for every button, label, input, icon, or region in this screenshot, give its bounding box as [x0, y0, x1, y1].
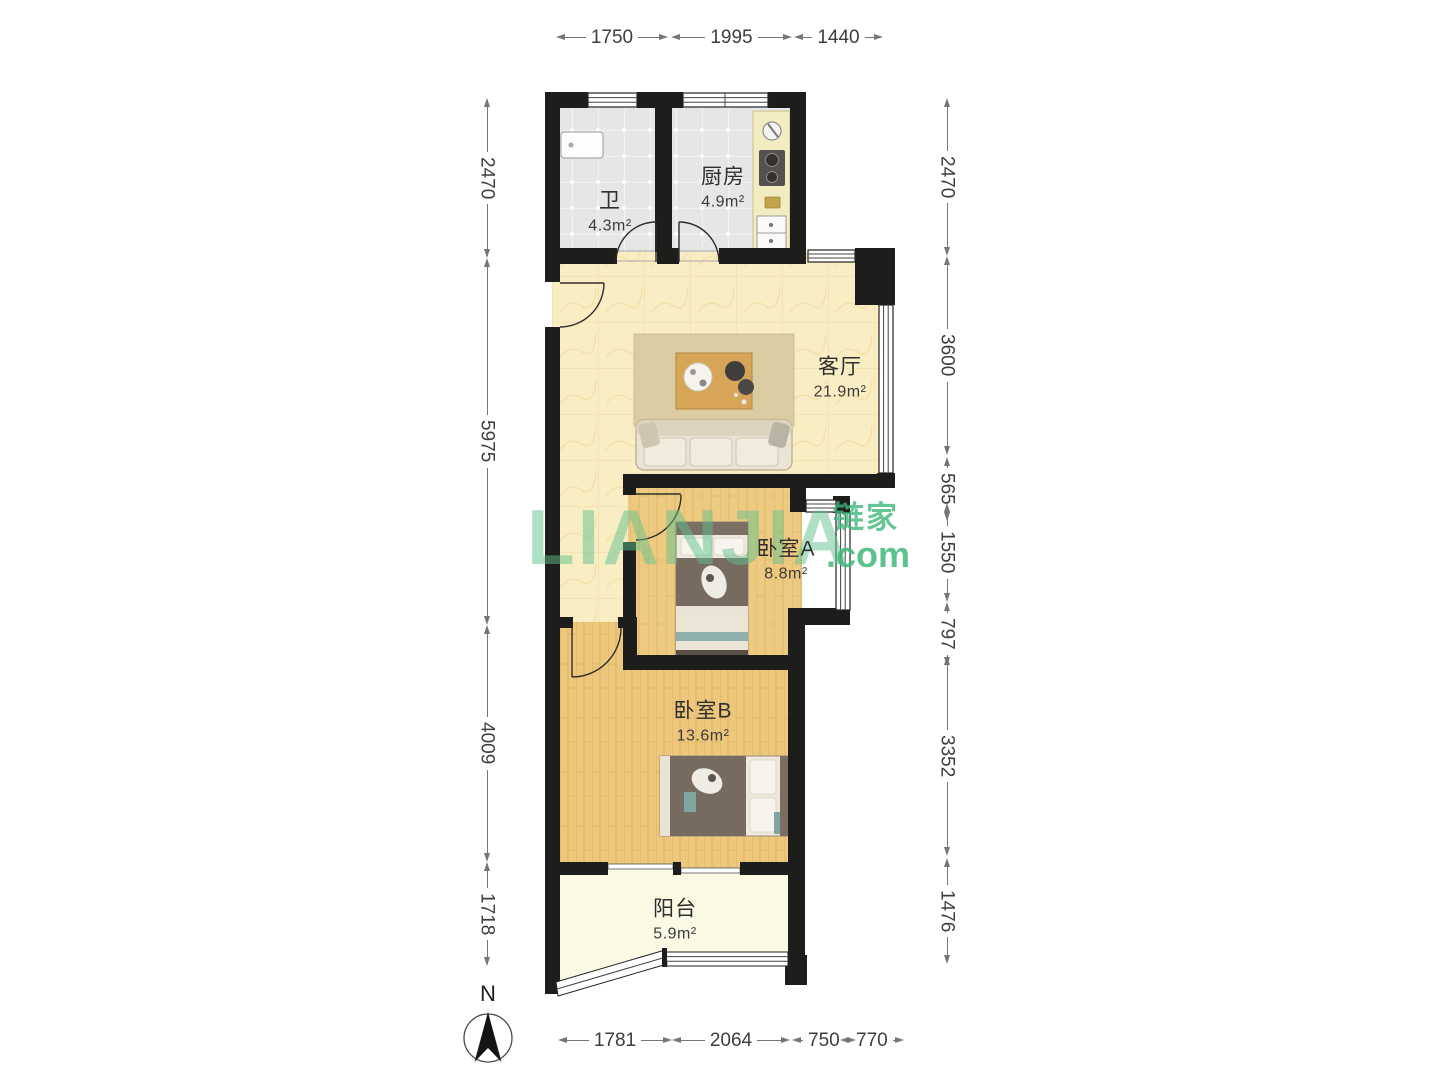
dimension-label: 4009: [478, 717, 497, 769]
sofa: [636, 420, 792, 470]
room-label-bedroom-b: 卧室B13.6m²: [673, 695, 732, 746]
kitchen-window: [683, 93, 768, 107]
room-label-bathroom: 卫4.3m²: [588, 185, 631, 236]
compass-needle-icon: [458, 1007, 518, 1067]
room-name: 厨房: [701, 161, 745, 191]
coffee-table: [676, 353, 754, 409]
dimension-label: 2470: [478, 152, 497, 204]
room-name: 阳台: [653, 893, 697, 923]
dimension-right-1: 3600: [937, 256, 957, 455]
dimension-top-1: 1995: [671, 27, 792, 47]
dimension-label: 797: [938, 613, 957, 655]
dimension-label: 1995: [705, 28, 757, 47]
dimension-label: 1440: [812, 28, 864, 47]
bedroom-b-bed: [660, 756, 790, 836]
floor-plan-page: LIANJIA 链家 .com 卫4.3m²厨房4.9m²客厅21.9m²卧室A…: [0, 0, 1440, 1080]
dimension-left-3: 1718: [477, 862, 497, 966]
dimension-right-2: 565: [937, 457, 957, 503]
dimension-right-6: 1476: [937, 858, 957, 964]
room-name: 卫: [588, 185, 631, 215]
compass: N: [458, 983, 518, 1072]
room-label-balcony: 阳台5.9m²: [653, 893, 697, 944]
kitchen-counter: [753, 111, 790, 250]
dimension-bottom-3: 770: [840, 1030, 888, 1050]
room-name: 卧室A: [756, 533, 815, 563]
dimension-label: 1476: [938, 885, 957, 937]
dimension-label: 1550: [938, 526, 957, 578]
living-room-right-window: [879, 305, 893, 473]
dimension-right-0: 2470: [937, 98, 957, 256]
room-label-bedroom-a: 卧室A8.8m²: [756, 533, 815, 584]
dimension-label: 750: [803, 1031, 845, 1050]
dimension-right-5: 3352: [937, 656, 957, 856]
dimension-right-4: 797: [937, 602, 957, 656]
dimension-top-2: 1440: [794, 27, 883, 47]
dimension-left-1: 5975: [477, 258, 497, 625]
dimension-label: 3352: [938, 730, 957, 782]
dimension-left-2: 4009: [477, 625, 497, 862]
bathroom-window: [588, 93, 637, 107]
dimension-left-0: 2470: [477, 98, 497, 258]
room-name: 客厅: [814, 351, 867, 381]
room-area: 4.3m²: [588, 218, 631, 236]
dimension-label: 3600: [938, 329, 957, 381]
room-area: 13.6m²: [673, 728, 732, 746]
dimension-label: 5975: [478, 415, 497, 467]
watermark-brand-suffix: .com: [826, 537, 910, 573]
dimension-label: 2064: [705, 1031, 757, 1050]
dimension-label: 1781: [589, 1031, 641, 1050]
dimension-bottom-0: 1781: [558, 1030, 672, 1050]
dimension-label: 2470: [938, 151, 957, 203]
dimension-label: 1718: [478, 888, 497, 940]
room-label-kitchen: 厨房4.9m²: [701, 161, 745, 212]
living-room-top-window: [808, 250, 855, 262]
dimension-top-0: 1750: [556, 27, 668, 47]
room-name: 卧室B: [673, 695, 732, 725]
dimension-label: 1750: [586, 28, 638, 47]
room-area: 5.9m²: [653, 926, 697, 944]
room-area: 4.9m²: [701, 194, 745, 212]
room-area: 21.9m²: [814, 384, 867, 402]
room-label-living-room: 客厅21.9m²: [814, 351, 867, 402]
bathroom-basin: [561, 132, 603, 158]
compass-north-label: N: [458, 983, 518, 1005]
room-area: 8.8m²: [756, 566, 815, 584]
watermark-brand-cn: 链家: [833, 502, 899, 533]
dimension-right-3: 1550: [937, 503, 957, 602]
dimension-bottom-1: 2064: [672, 1030, 790, 1050]
dimension-bottom-2: 750: [792, 1030, 840, 1050]
dimension-label: 770: [851, 1031, 893, 1050]
